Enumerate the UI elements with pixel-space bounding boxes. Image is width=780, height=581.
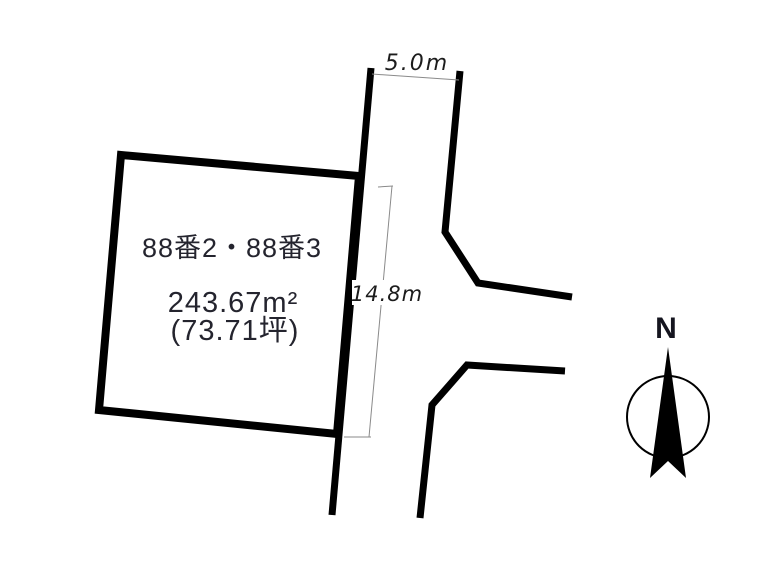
parcel-lot-label: 88番2・88番3	[142, 233, 322, 263]
frontage-dimension-line	[369, 186, 392, 437]
compass-north-label: N	[655, 312, 677, 345]
compass-needle-icon	[650, 347, 686, 478]
site-plan-canvas: 5.0m 14.8m 88番2・88番3 243.67m² (73.71坪) N	[0, 0, 780, 581]
site-plan: 5.0m 14.8m 88番2・88番3 243.67m² (73.71坪) N	[0, 0, 780, 581]
road-right-edge-lower-line	[420, 365, 565, 518]
road-width-label: 5.0m	[385, 51, 449, 76]
frontage-label: 14.8m	[351, 282, 423, 306]
parcel-area-tsubo-label: (73.71坪)	[171, 314, 300, 347]
road-right-edge-upper-line	[445, 71, 572, 297]
frontage-dimension-top-tick	[378, 186, 393, 187]
